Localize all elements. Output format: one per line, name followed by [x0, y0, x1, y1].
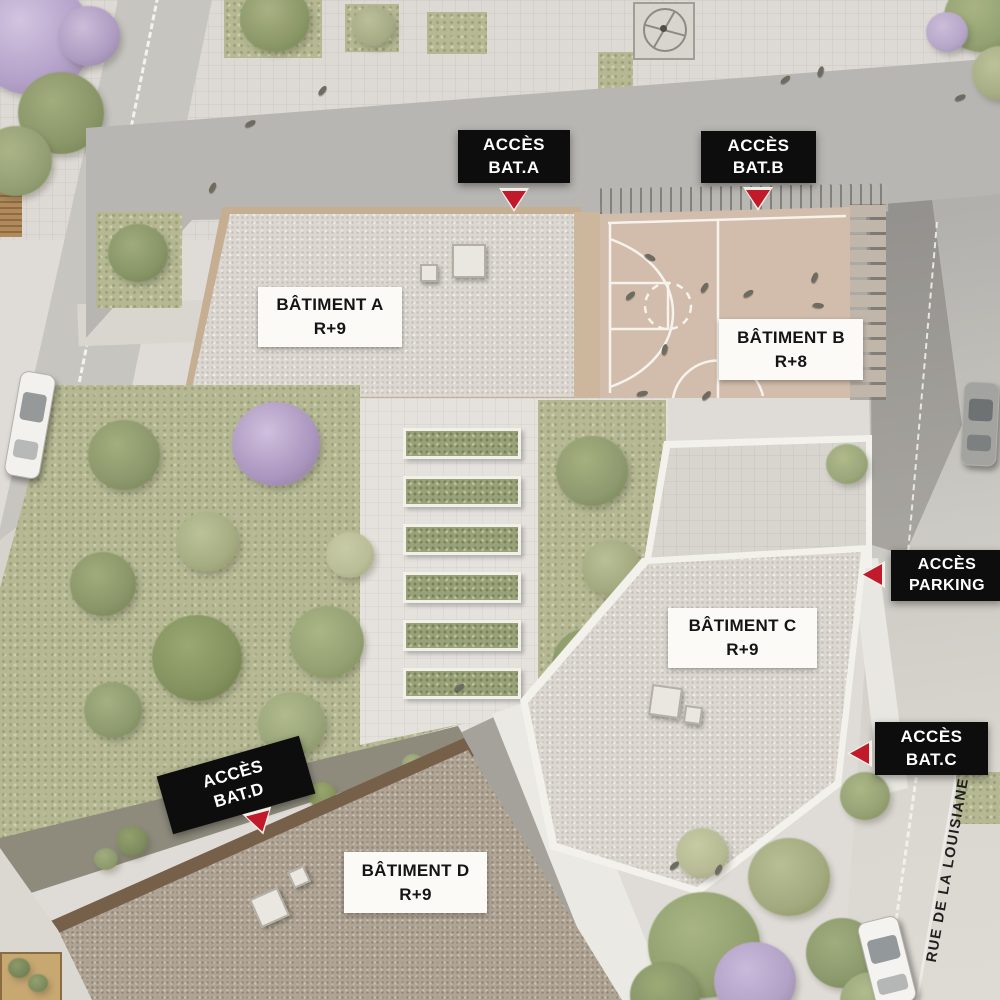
- access-marker-bat-a: ACCÈS BAT.A: [458, 130, 570, 183]
- building-c-name: BÂTIMENT C: [668, 614, 817, 638]
- access-bat-b-line1: ACCÈS: [701, 135, 816, 157]
- tree: [352, 6, 394, 46]
- building-b-level: R+8: [719, 350, 863, 374]
- roof-skylight: [648, 684, 683, 719]
- car-rear-window: [12, 439, 39, 461]
- blossom-tree: [232, 402, 320, 486]
- car-rear-window: [967, 434, 992, 451]
- tree: [88, 420, 160, 490]
- courtyard-planter: [403, 572, 521, 603]
- tree: [176, 512, 238, 572]
- spiral-stair-center: [660, 25, 667, 32]
- access-parking-line1: ACCÈS: [891, 555, 1000, 576]
- building-d-label: BÂTIMENT D R+9: [344, 852, 487, 913]
- building-d-level: R+9: [344, 883, 487, 907]
- building-c-level: R+9: [668, 638, 817, 662]
- car-rear-window: [876, 973, 909, 996]
- courtyard-planter: [403, 620, 521, 651]
- tree: [748, 838, 830, 916]
- site-plan-aerial-view: RUE DE LA LOUISIANE BÂTIMENT A R+9 BÂTIM…: [0, 0, 1000, 1000]
- access-bat-c-line1: ACCÈS: [875, 726, 988, 748]
- building-b-name: BÂTIMENT B: [719, 326, 863, 350]
- tree: [826, 444, 868, 484]
- tree: [70, 552, 136, 616]
- planting-bed: [427, 12, 487, 54]
- car-gray: [960, 381, 1000, 467]
- roof-skylight: [420, 264, 438, 282]
- access-bat-b-line2: BAT.B: [701, 157, 816, 179]
- building-c-label: BÂTIMENT C R+9: [668, 608, 817, 668]
- tree: [290, 606, 364, 678]
- tree: [556, 436, 628, 506]
- access-marker-parking: ACCÈS PARKING: [891, 550, 1000, 601]
- access-marker-bat-b: ACCÈS BAT.B: [701, 131, 816, 183]
- building-d-name: BÂTIMENT D: [344, 859, 487, 883]
- car-windshield: [968, 398, 993, 421]
- tree: [108, 224, 168, 282]
- shrub: [8, 958, 30, 978]
- tree: [326, 532, 374, 578]
- car-windshield: [19, 391, 47, 423]
- roof-skylight: [452, 244, 486, 278]
- access-bat-c-line2: BAT.C: [875, 749, 988, 771]
- courtyard-planter: [403, 428, 521, 459]
- shrub: [94, 848, 118, 870]
- building-a-level: R+9: [258, 317, 402, 341]
- blossom-tree: [926, 12, 968, 52]
- tree: [84, 682, 142, 738]
- courtyard-planter: [403, 476, 521, 507]
- access-parking-line2: PARKING: [891, 576, 1000, 597]
- building-a-name: BÂTIMENT A: [258, 293, 402, 317]
- roof-skylight: [683, 705, 703, 725]
- tree: [840, 772, 890, 820]
- courtyard-planter: [403, 524, 521, 555]
- tree: [152, 615, 242, 701]
- building-b-label: BÂTIMENT B R+8: [719, 319, 863, 380]
- access-bat-a-line2: BAT.A: [458, 157, 570, 179]
- shrub: [28, 974, 48, 992]
- access-marker-bat-c: ACCÈS BAT.C: [875, 722, 988, 775]
- access-bat-a-line1: ACCÈS: [458, 134, 570, 156]
- building-a-label: BÂTIMENT A R+9: [258, 287, 402, 347]
- car-windshield: [866, 934, 901, 965]
- shrub: [116, 826, 148, 856]
- blossom-tree: [58, 6, 120, 66]
- spiral-stair: [633, 2, 695, 60]
